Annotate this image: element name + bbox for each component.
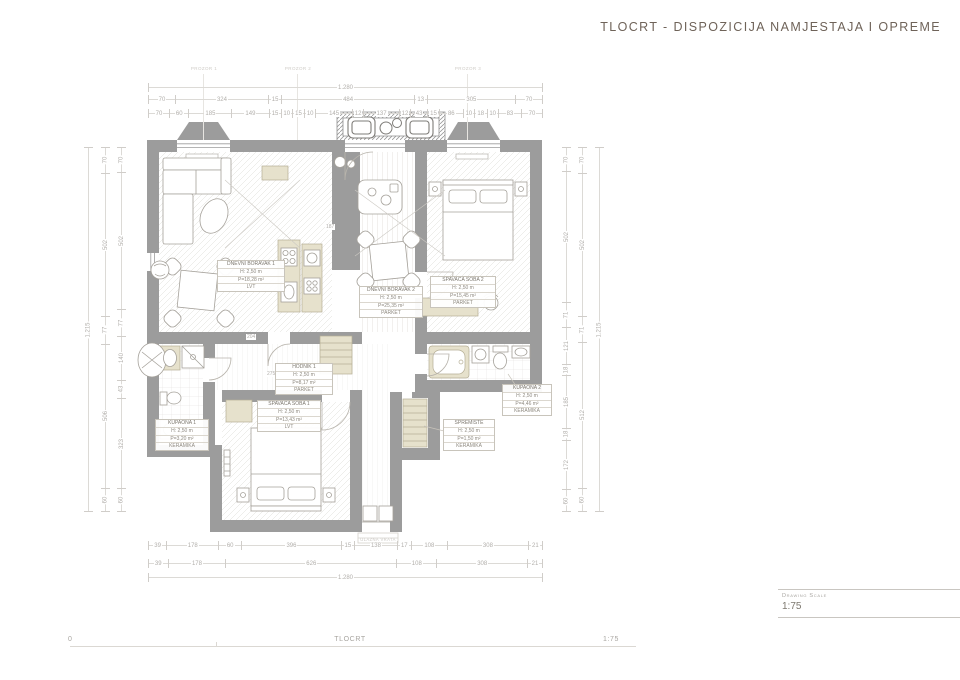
bed-2 <box>429 180 527 260</box>
room-height: H: 2,50 m <box>431 285 495 293</box>
radiator-bedroom1 <box>224 450 230 476</box>
drawing-scale-box: Drawing Scale 1:75 <box>778 589 960 618</box>
room-label-spremiste: SPREMIŠTE H: 2,50 m P=1,50 m² KERAMIKA <box>443 419 495 451</box>
bathtub <box>429 346 469 378</box>
room-name: DNEVNI BORAVAK 1 <box>218 261 284 269</box>
dim-strip-left-mid: 705027750660 <box>101 147 110 512</box>
room-floor: LVT <box>258 424 320 431</box>
room-label-dnevni-boravak-1: DNEVNI BORAVAK 1 H: 2,50 m P=18,28 m² LV… <box>217 260 285 292</box>
room-name: KUPAONA 2 <box>503 385 551 393</box>
room-area: P=15,45 m² <box>431 293 495 301</box>
room-height: H: 2,50 m <box>444 428 494 436</box>
plant-large <box>138 343 166 377</box>
toilet-tank <box>160 392 167 405</box>
room-floor: KERAMIKA <box>503 408 551 415</box>
dim-strip-right-inner: 7050271121181851817260 <box>562 147 571 512</box>
dim-strip-bottom-row1: 3917860396151381710830821 <box>148 541 543 550</box>
bedroom1-wardrobe <box>226 400 252 422</box>
balcony-armchair <box>348 117 375 138</box>
room-label-spavaca-soba-1: SPAVAĆA SOBA 1 H: 2,50 m P=13,43 m² LVT <box>257 400 321 432</box>
room-height: H: 2,50 m <box>156 428 208 436</box>
plant <box>151 261 169 279</box>
room-height: H: 2,50 m <box>360 295 422 303</box>
dim-strip-left-inner: 70502771404332360 <box>117 147 126 512</box>
room-area: P=18,28 m² <box>218 277 284 285</box>
window1-label: PROZOR 1 <box>187 66 221 71</box>
room-name: SPAVAĆA SOBA 1 <box>258 401 320 409</box>
room-floor: LVT <box>218 284 284 291</box>
toilet-bowl <box>167 392 181 404</box>
sheet-title: TLOCRT - DISPOZICIJA NAMJESTAJA I OPREME <box>600 20 941 34</box>
footer-scale: 1:75 <box>603 636 619 643</box>
room-area: P=13,43 m² <box>258 417 320 425</box>
room-area: P=25,35 m² <box>360 303 422 311</box>
room-area: P=8,17 m² <box>276 380 332 388</box>
footer-rule <box>70 646 636 647</box>
storage-shelves <box>403 399 427 447</box>
footer-title: TLOCRT <box>300 636 400 643</box>
dim-strip-top-row1: 70324154841330570 <box>148 95 543 104</box>
window2-label: PROZOR 2 <box>281 66 315 71</box>
bed-1 <box>237 428 335 511</box>
room-label-kupaona-1: KUPAONA 1 H: 2,50 m P=3,20 m² KERAMIKA <box>155 419 209 451</box>
room-height: H: 2,50 m <box>276 372 332 380</box>
window3-label: PROZOR 3 <box>451 66 485 71</box>
footer-zero: 0 <box>68 636 73 643</box>
interior-dim: 204 <box>246 334 256 340</box>
entrance-label: ULAZNA VRATA <box>346 537 410 542</box>
room-area: P=4,46 m² <box>503 401 551 409</box>
room-floor: PARKET <box>276 387 332 394</box>
interior-dim: 187 <box>325 224 335 230</box>
room-floor: KERAMIKA <box>156 443 208 450</box>
room-label-dnevni-boravak-2: DNEVNI BORAVAK 2 H: 2,50 m P=25,35 m² PA… <box>359 286 423 318</box>
dim-strip-top-row2: 7060185149151015101451213712431586101810… <box>148 109 543 118</box>
toilet-bowl <box>494 353 507 369</box>
balcony-tables <box>380 119 402 135</box>
room-height: H: 2,50 m <box>218 269 284 277</box>
room-label-spavaca-soba-2: SPAVAĆA SOBA 2 H: 2,50 m P=15,45 m² PARK… <box>430 276 496 308</box>
dim-strip-top-total: 1.280 <box>148 83 543 92</box>
room-area: P=1,50 m² <box>444 436 494 444</box>
room-label-hodnik-1: HODNIK 1 H: 2,50 m P=8,17 m² PARKET <box>275 363 333 395</box>
dim-strip-bottom-row2: 3917862610830821 <box>148 559 543 568</box>
room-floor: PARKET <box>360 310 422 317</box>
room-floor: PARKET <box>431 300 495 307</box>
room-name: KUPAONA 1 <box>156 420 208 428</box>
drawing-scale-label: Drawing Scale <box>782 593 960 599</box>
sink <box>164 350 177 367</box>
dim-strip-right-total: 1.215 <box>595 147 604 512</box>
drawing-scale-value: 1:75 <box>782 601 960 612</box>
dim-strip-left-total: 1.215 <box>84 147 93 512</box>
room-name: HODNIK 1 <box>276 364 332 372</box>
balcony-armchair <box>406 117 433 138</box>
room-name: DNEVNI BORAVAK 2 <box>360 287 422 295</box>
room-floor: KERAMIKA <box>444 443 494 450</box>
footer-tick <box>216 642 217 647</box>
dim-strip-bottom-total: 1.280 <box>148 573 543 582</box>
room-label-kupaona-2: KUPAONA 2 H: 2,50 m P=4,46 m² KERAMIKA <box>502 384 552 416</box>
drawing-sheet: { "header": { "title": "TLOCRT - DISPOZI… <box>0 0 960 680</box>
room-height: H: 2,50 m <box>258 409 320 417</box>
toilet-tank <box>493 346 508 352</box>
room-height: H: 2,50 m <box>503 393 551 401</box>
kitchen-upper-cabinet <box>262 166 288 180</box>
room-name: SPREMIŠTE <box>444 420 494 428</box>
room-name: SPAVAĆA SOBA 2 <box>431 277 495 285</box>
room-area: P=3,20 m² <box>156 436 208 444</box>
dim-strip-right-mid: 705027151260 <box>578 147 587 512</box>
